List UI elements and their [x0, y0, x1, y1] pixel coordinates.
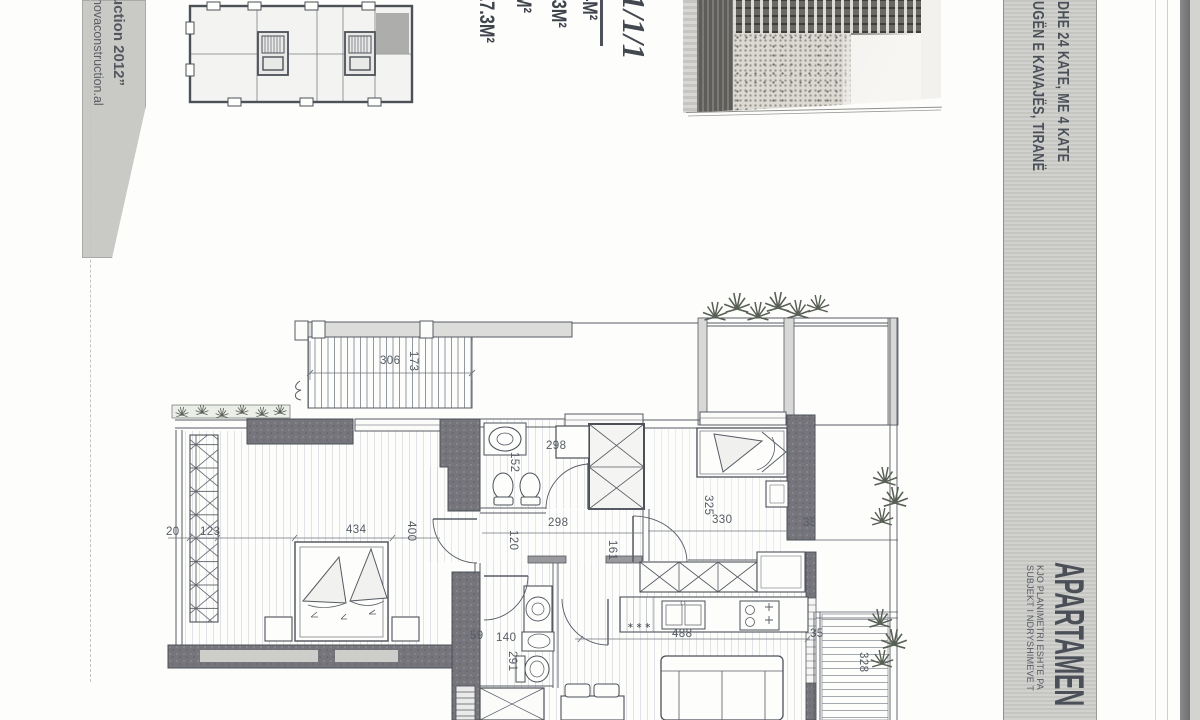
band-header-line1: DHE 24 KATE, ME 4 KATE — [1054, 1, 1070, 162]
photo-margin-strip — [683, 0, 697, 114]
area-row-3: M² — [513, 0, 534, 13]
dim-terrace-width: 306 — [380, 356, 400, 368]
photo-cityscape — [733, 33, 851, 114]
scan-edge-margin — [1190, 0, 1200, 720]
stamp-website: novaconstruction.al — [92, 0, 105, 106]
area-row-1: 4M² — [579, 0, 600, 20]
dim-bedroom1-depth: 400 — [405, 521, 417, 541]
dim-kitchen-width: 488 — [672, 629, 692, 641]
stamp-company-year: uction 2012” — [111, 0, 126, 86]
floor-plan — [168, 292, 908, 720]
bidet — [520, 473, 540, 499]
kitchen-symbol-marks: ∗∗∗ — [627, 621, 653, 630]
site-photo — [683, 0, 941, 114]
dim-wardrobe-width: 123 — [200, 527, 220, 539]
key-plan-highlighted-unit — [376, 13, 409, 54]
scan-line-artifact — [1167, 0, 1168, 720]
toilet — [525, 656, 549, 682]
toilet — [493, 473, 513, 499]
dining-table — [561, 696, 624, 720]
dim-hall-side: 161 — [606, 540, 618, 560]
area-row-4: 17.3M² — [476, 0, 497, 43]
scan-line-artifact — [1155, 0, 1156, 720]
tall-cabinet — [757, 552, 805, 592]
dim-bathroom1-width: 298 — [546, 441, 566, 453]
dim-sink-140: 140 — [496, 633, 516, 645]
band-note-line1: KJO PLANIMETRI ESHTE PA — [1035, 565, 1044, 690]
nightstand-right — [392, 617, 419, 641]
dim-terrace-depth: 173 — [407, 351, 419, 371]
lower-balcony — [822, 614, 888, 720]
scanned-floorplan-page: uction 2012” novaconstruction.al 4M² 0.3… — [0, 0, 1200, 720]
band-title: APARTAMEN — [1048, 562, 1090, 706]
band-header-line2: UGËN E KAVAJËS, TIRANË — [1029, 1, 1045, 171]
photo-tower-facade — [697, 0, 733, 114]
key-plan — [186, 2, 412, 106]
washbasin — [489, 427, 521, 451]
dim-balcony-328: 328 — [857, 652, 869, 672]
planter-strip — [172, 405, 290, 418]
dim-wardrobe-offset: 20 — [166, 527, 180, 539]
photo-building-windows — [733, 0, 921, 35]
shaft-closet — [589, 424, 644, 509]
nightstand-left — [265, 617, 292, 641]
dim-hall-depth: 120 — [507, 530, 519, 550]
dim-bedroom2-depth: 325 — [702, 495, 714, 515]
stove — [740, 601, 779, 630]
key-plan-stair-core-2 — [345, 32, 375, 75]
chair — [565, 684, 590, 697]
dim-wall-35b: 35 — [810, 629, 824, 641]
dim-hall-width: 298 — [548, 518, 568, 530]
dim-wc-291: 291 — [506, 651, 518, 671]
dim-wall-35a: 35 — [803, 518, 817, 530]
dim-bathroom1-depth: 152 — [508, 452, 520, 472]
dim-bedroom2-width: 330 — [712, 515, 732, 527]
dim-bedroom1-width: 434 — [346, 525, 366, 537]
handwritten-unit-mark: 1/1/1 — [618, 0, 650, 60]
key-plan-stair-core-1 — [258, 32, 288, 75]
band-note-line2: SUBJEKT I NDRYSHIMEVE T — [1025, 565, 1034, 691]
chair — [594, 684, 619, 697]
washing-machine — [524, 586, 552, 632]
scan-edge-shadow — [1180, 0, 1190, 720]
unit-mark-underline — [600, 0, 603, 46]
area-row-2: 0.3M² — [548, 0, 569, 28]
dim-corner-59: 59 — [470, 631, 484, 643]
